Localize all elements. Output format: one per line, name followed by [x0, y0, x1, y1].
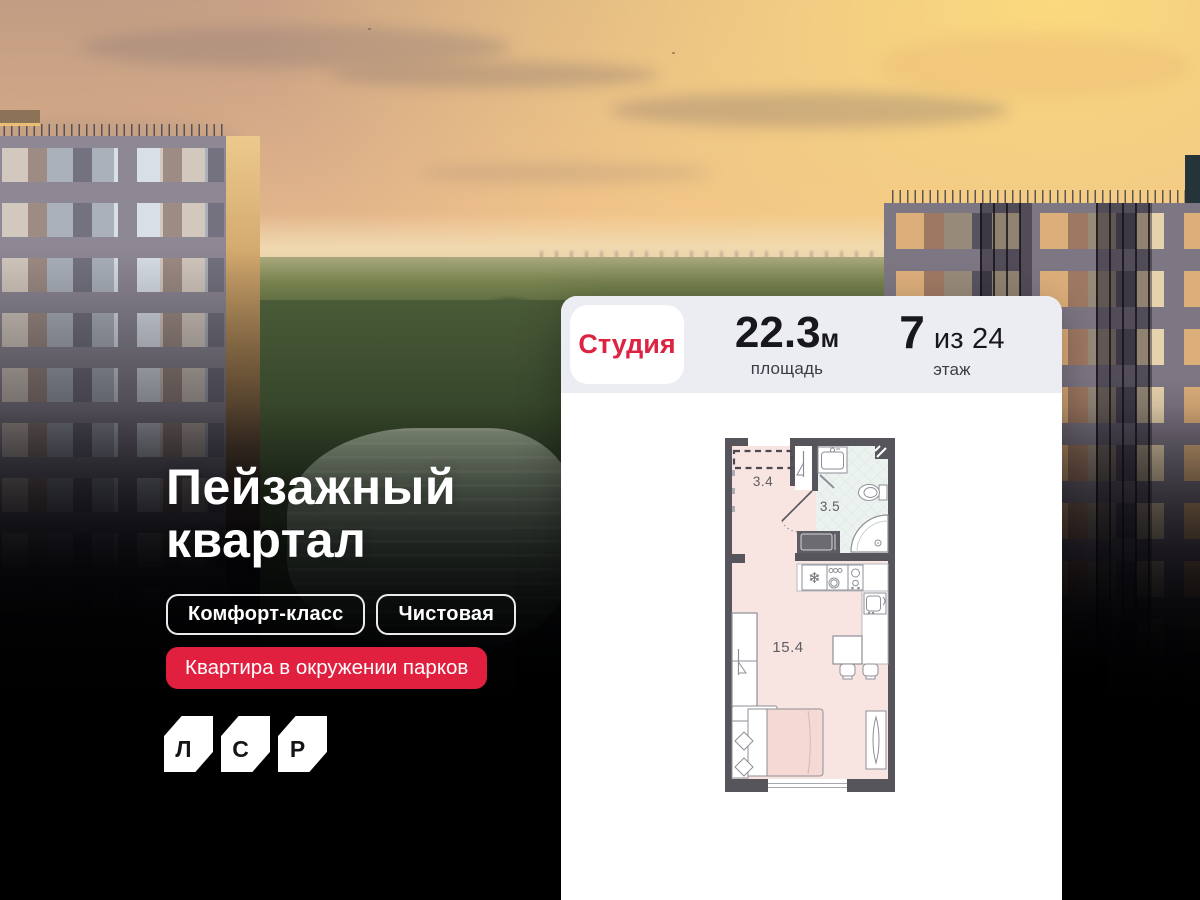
apartment-type-chip: Студия — [570, 305, 684, 384]
bathroom-area-label: 3.5 — [820, 499, 840, 514]
project-title-line1: Пейзажный — [166, 461, 456, 514]
floor-label: этаж — [933, 360, 971, 380]
badge-finishing: Чистовая — [376, 594, 516, 635]
svg-text:❄: ❄ — [808, 569, 821, 587]
mirror — [866, 711, 886, 769]
wardrobe — [732, 613, 757, 707]
highlight-badge: Квартира в окружении парков — [166, 647, 487, 689]
dining-table — [833, 636, 862, 664]
feature-badges: Комфорт-класс Чистовая — [166, 594, 516, 635]
entry-door — [795, 446, 812, 490]
badge-comfort-class: Комфорт-класс — [166, 594, 365, 635]
lsr-logo-cube-s: С — [221, 716, 270, 772]
apartment-card: Студия 22.3м площадь 7из 24 этаж — [561, 296, 1062, 900]
floor-stat: 7из 24 этаж — [877, 296, 1027, 393]
living-area-label: 15.4 — [772, 639, 803, 656]
lsr-logo: Л С Р — [164, 716, 327, 772]
floor-plan-area: ❄ — [561, 393, 1062, 900]
window-bottom — [768, 779, 847, 792]
sofa-bed — [732, 706, 823, 778]
project-title-line2: квартал — [166, 514, 456, 567]
fridge: ❄ — [802, 565, 827, 590]
studio-floor-plan: ❄ — [725, 437, 895, 793]
washing-machine — [797, 531, 840, 553]
project-title: Пейзажный квартал — [166, 461, 456, 567]
area-label: площадь — [751, 359, 823, 379]
apartment-card-header: Студия 22.3м площадь 7из 24 этаж — [561, 296, 1062, 393]
sink — [818, 447, 847, 473]
lsr-logo-cube-r: Р — [278, 716, 327, 772]
area-unit: м — [821, 325, 840, 354]
stove — [827, 565, 848, 590]
lsr-logo-cube-l: Л — [164, 716, 213, 772]
hallway-area-label: 3.4 — [753, 474, 773, 489]
oven — [848, 565, 863, 590]
floor-value: 7 — [899, 309, 925, 355]
area-stat: 22.3м площадь — [712, 296, 862, 393]
area-value: 22.3 — [735, 311, 821, 355]
vent-shaft — [875, 446, 888, 459]
floor-of-total: из 24 — [934, 323, 1005, 356]
promo-banner: Пейзажный квартал Комфорт-класс Чистовая… — [0, 0, 1200, 900]
toilet — [859, 485, 888, 501]
kitchen-sink — [864, 593, 886, 614]
